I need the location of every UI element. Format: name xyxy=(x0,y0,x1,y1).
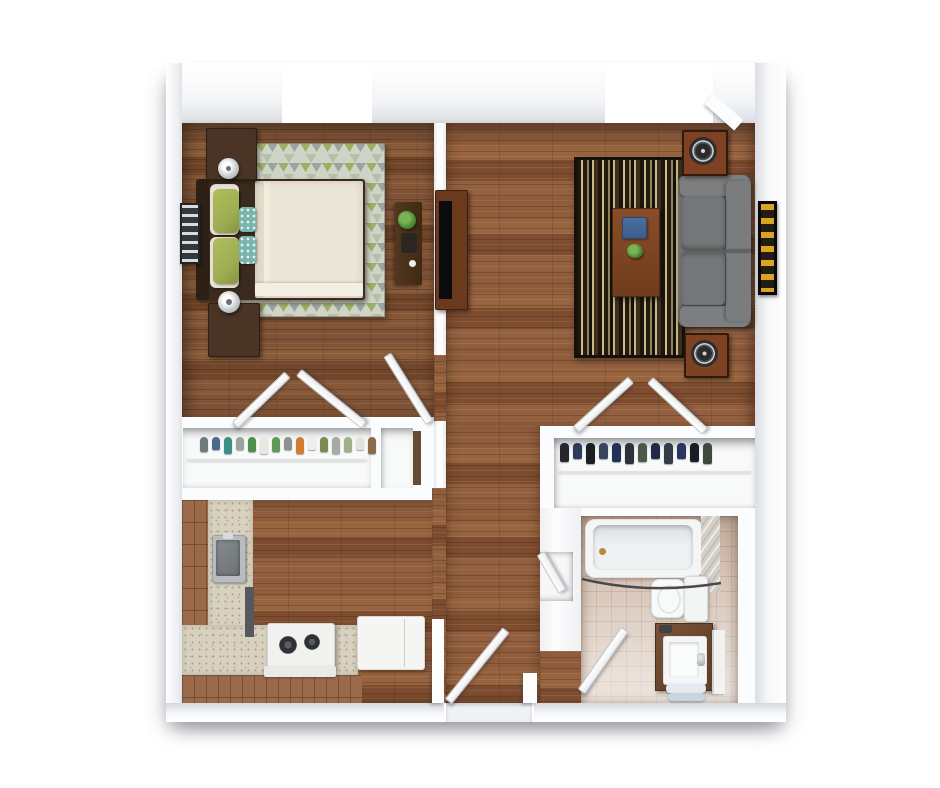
stove-burner-right xyxy=(304,634,320,650)
hanging-garment xyxy=(690,443,699,462)
toilet-seat xyxy=(657,585,681,614)
hanging-garment xyxy=(703,443,712,464)
hanging-garment xyxy=(664,443,673,464)
bathroom-doorway-floor xyxy=(540,651,581,703)
hanging-garment xyxy=(638,443,647,462)
hanging-garment xyxy=(599,443,608,459)
vanity-faucet xyxy=(697,653,705,666)
wall-kitchen-entry-stub xyxy=(432,619,444,703)
towel-top xyxy=(666,684,706,693)
desk-chair xyxy=(401,233,417,253)
hanging-garment xyxy=(677,443,686,459)
bedroom-closet-garment-row xyxy=(200,437,368,455)
closet-alcove-shelving xyxy=(413,431,421,485)
dishwasher-front xyxy=(245,587,254,637)
kitchen-sink xyxy=(212,535,246,583)
hanging-garment xyxy=(612,443,621,462)
bedroom-window xyxy=(282,67,372,126)
bedroom-wall-art xyxy=(180,203,200,264)
hanging-garment xyxy=(625,443,634,464)
bed-pillow-teal-top xyxy=(239,207,256,232)
table-lamp-bottom xyxy=(218,291,240,313)
bathroom-mirror-panel xyxy=(712,630,725,694)
hanging-garment xyxy=(586,443,595,464)
hall-closet-garment-row xyxy=(560,443,732,465)
sofa xyxy=(678,175,751,327)
hanging-garment xyxy=(212,437,220,450)
sofa-seat-cushion-bottom xyxy=(681,252,725,305)
tv-console xyxy=(435,190,468,310)
wall-right xyxy=(755,63,786,722)
stove-control-panel xyxy=(264,666,336,677)
sofa-seat-cushion-top xyxy=(681,196,725,250)
sofa-backrest xyxy=(726,181,751,321)
bed-pillow-teal-bottom xyxy=(239,236,256,264)
wall-left xyxy=(166,63,182,722)
tv-screen xyxy=(439,201,452,299)
table-lamp-top xyxy=(218,158,239,179)
bedroom-closet-alcove xyxy=(381,428,413,488)
toilet-tank xyxy=(684,576,708,622)
hanging-garment xyxy=(560,443,569,462)
speaker-bottom xyxy=(684,333,729,378)
sink-faucet xyxy=(223,533,233,539)
bed-pillow-green-top xyxy=(213,189,239,233)
refrigerator xyxy=(357,616,425,670)
bed-sheet-fold xyxy=(255,283,363,296)
desk-accessory xyxy=(409,260,416,267)
wall-entry-right-stub xyxy=(523,673,537,703)
hanging-garment xyxy=(260,437,268,454)
sink-basin xyxy=(216,540,240,576)
bed xyxy=(196,179,365,300)
bathroom-vanity xyxy=(655,623,713,691)
hanging-garment xyxy=(356,437,364,450)
hanging-garment xyxy=(236,437,244,450)
toilet-bowl xyxy=(651,579,685,618)
hanging-garment xyxy=(573,443,582,459)
coffee-table-plant xyxy=(627,244,643,258)
entry-threshold xyxy=(444,703,534,722)
floor-plan-image xyxy=(0,0,940,788)
hanging-garment xyxy=(200,437,208,452)
desk-plant xyxy=(398,211,416,229)
speaker-cone-top xyxy=(689,137,717,165)
hanging-garment xyxy=(308,437,316,450)
hanging-garment xyxy=(368,437,376,454)
hanging-garment xyxy=(272,437,280,452)
bathtub-drain-fixture xyxy=(599,548,606,555)
hanging-garment xyxy=(320,437,328,452)
hallway-floor xyxy=(446,426,540,703)
stove-burner-left xyxy=(279,636,297,654)
kitchen-cabinet-front-bottom xyxy=(182,675,362,703)
laptop xyxy=(622,217,647,239)
vanity-sink-basin xyxy=(669,642,699,677)
bathtub xyxy=(585,519,703,578)
vanity-sink xyxy=(663,636,707,685)
living-room-wall-art xyxy=(758,201,777,295)
apartment-floor-plan xyxy=(166,63,786,722)
bed-pillow-green-bottom xyxy=(213,238,239,284)
vanity-soap-dish xyxy=(659,625,672,633)
bathtub-basin xyxy=(593,525,693,570)
living-room-window xyxy=(605,67,713,128)
hanging-garment xyxy=(248,437,256,452)
bedroom-doorway-floor xyxy=(434,355,446,421)
bedroom-closet-shelf-edge xyxy=(187,459,367,461)
bed-duvet xyxy=(255,181,363,298)
hanging-garment xyxy=(284,437,292,450)
towel-bottom xyxy=(668,693,705,701)
hanging-garment xyxy=(296,437,304,454)
hall-closet-shelf-edge xyxy=(558,471,751,473)
refrigerator-door-seam xyxy=(404,619,405,667)
speaker-top xyxy=(682,130,728,176)
hanging-garment xyxy=(651,443,660,459)
hanging-garment xyxy=(332,437,340,454)
speaker-cone-bottom xyxy=(691,340,718,367)
stove xyxy=(267,623,335,671)
hanging-garment xyxy=(344,437,352,452)
hanging-garment xyxy=(224,437,232,454)
